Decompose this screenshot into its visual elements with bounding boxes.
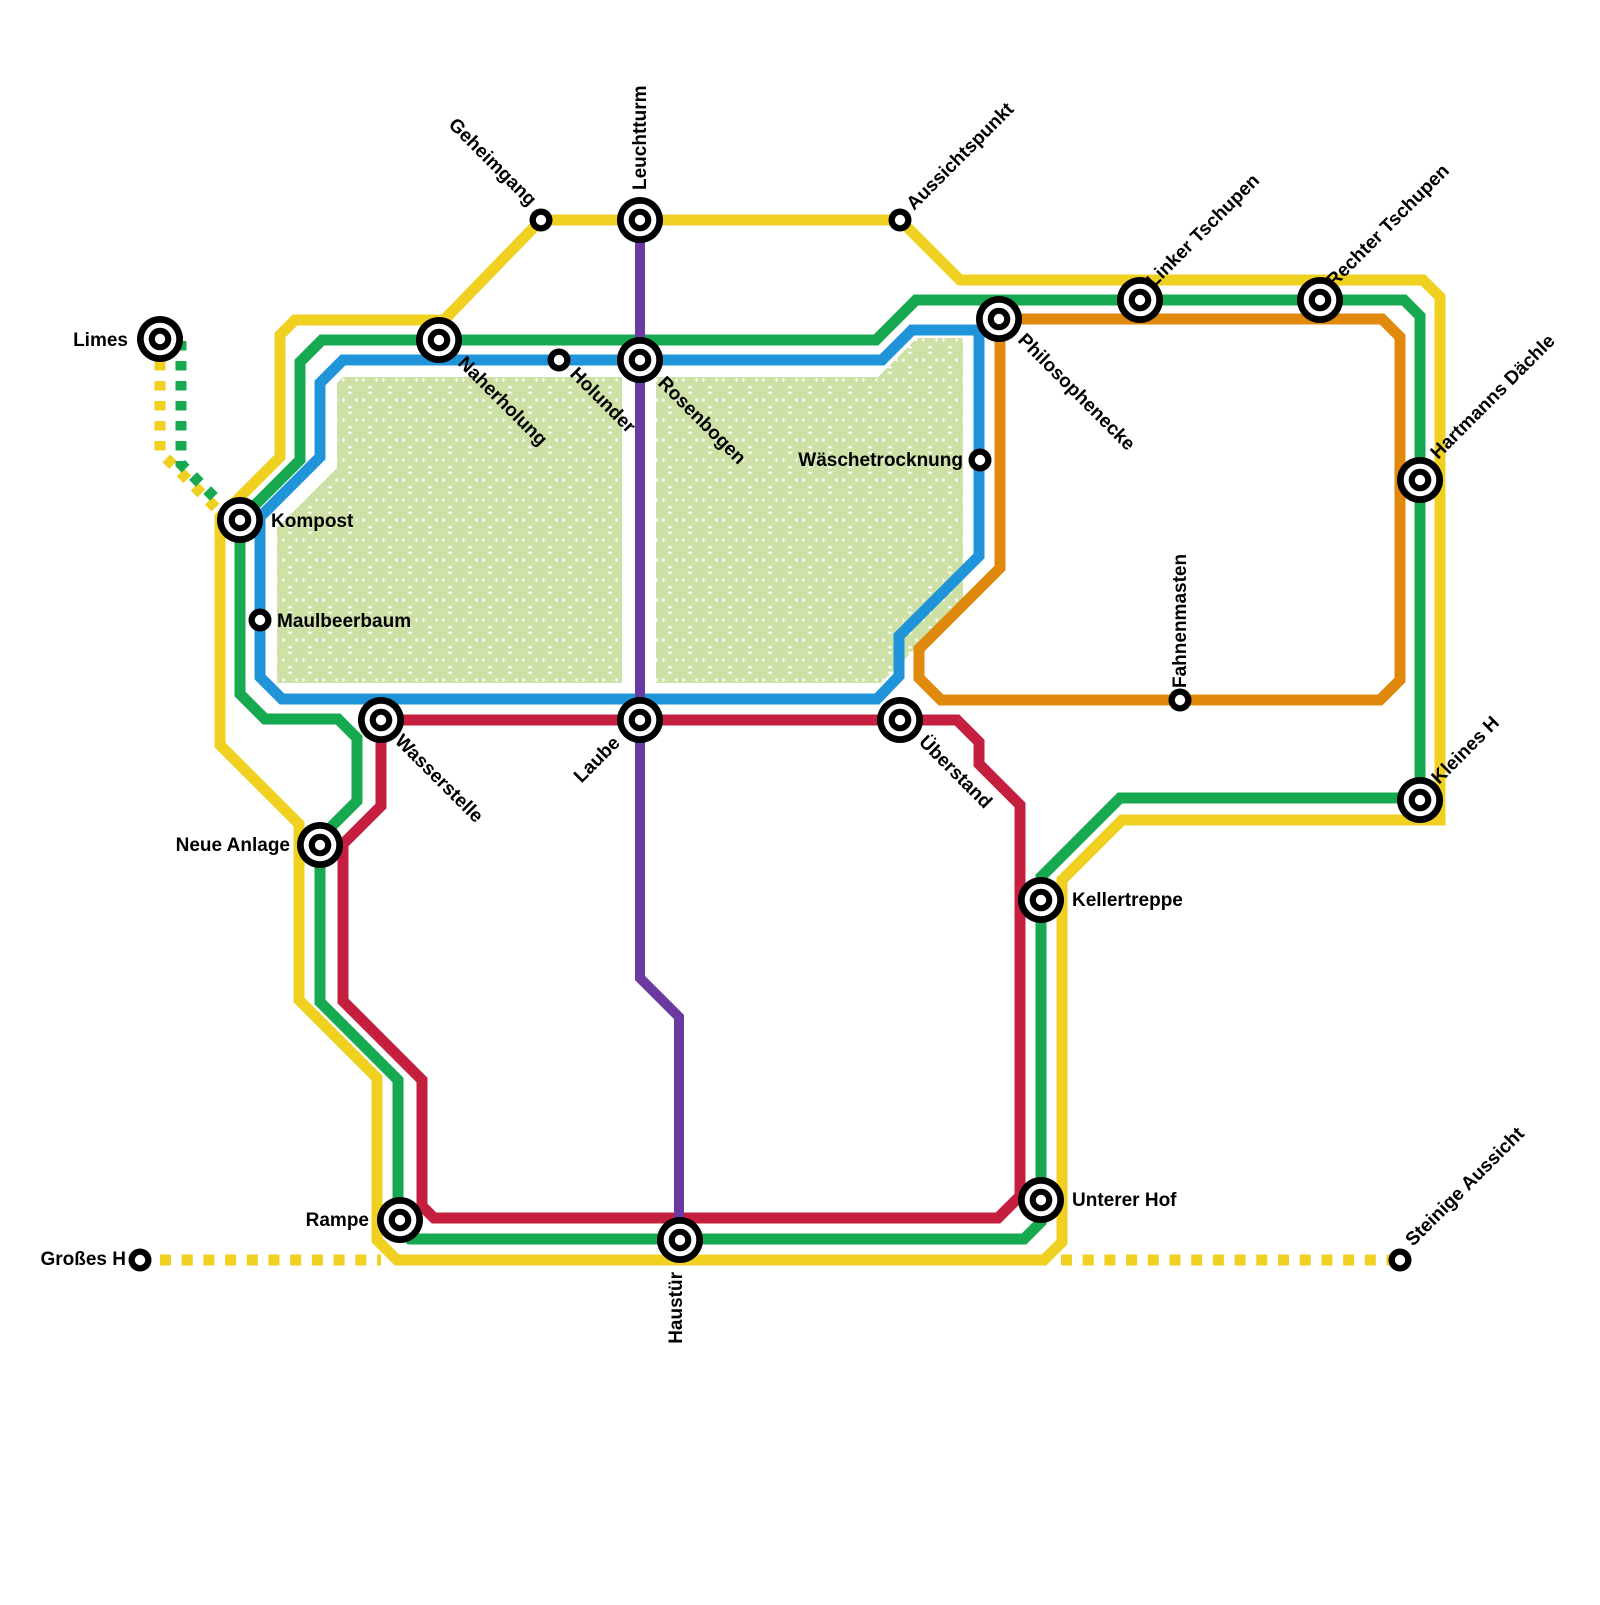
svg-text:Wäschetrocknung: Wäschetrocknung <box>798 450 963 471</box>
svg-text:Limes: Limes <box>73 330 128 351</box>
svg-text:Neue Anlage: Neue Anlage <box>176 835 290 856</box>
svg-text:Leuchtturm: Leuchtturm <box>630 86 651 191</box>
svg-text:Großes H: Großes H <box>40 1249 126 1270</box>
svg-text:Kompost: Kompost <box>271 511 354 532</box>
svg-text:Maulbeerbaum: Maulbeerbaum <box>277 611 411 632</box>
svg-text:Fahnenmasten: Fahnenmasten <box>1170 554 1191 688</box>
svg-text:Unterer Hof: Unterer Hof <box>1072 1190 1177 1211</box>
svg-text:Kellertreppe: Kellertreppe <box>1072 890 1183 911</box>
svg-text:Rampe: Rampe <box>306 1210 369 1231</box>
svg-text:Haustür: Haustür <box>666 1271 687 1343</box>
